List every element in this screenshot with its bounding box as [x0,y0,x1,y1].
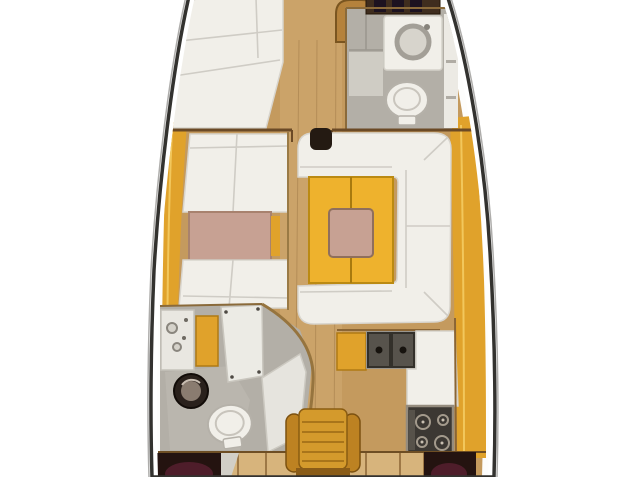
mast-post [310,128,332,150]
forward-toilet-hinge [398,116,416,125]
settee-table [189,212,271,260]
yacht-floorplan [0,0,636,477]
panel-vent-1 [446,60,456,63]
sink-drain-left [376,347,383,354]
aft-sink-knob-1 [184,318,188,322]
salon-table-inset [329,209,373,257]
sink-faucet [424,24,430,30]
forward-head-shower-seat [349,52,383,96]
floorplan-image [0,0,636,477]
galley-outboard-trim [455,318,456,458]
aft-sink-faucet [173,343,181,351]
stove-side-rail [409,410,415,450]
aft-sink-basin [167,323,177,333]
shelf-bottles [374,0,422,12]
settee-bench-aft [179,260,288,308]
aft-head-sink-unit [161,310,194,370]
port-settee [179,132,288,310]
forward-head [346,0,458,130]
panel-vent-2 [446,96,456,99]
settee-table-leaf [271,216,280,256]
aft-sink-knob-2 [182,336,186,340]
chart-table-chair [286,409,360,477]
aft-head-amber-cabinet [196,316,218,366]
salon-sofa [298,128,451,324]
galley-amber-cabinet [337,333,366,370]
round-sink [397,26,429,58]
sink-drain-right [400,347,407,354]
aft-head-counter-panel [221,305,263,382]
aft-toilet-hinge [223,437,242,449]
